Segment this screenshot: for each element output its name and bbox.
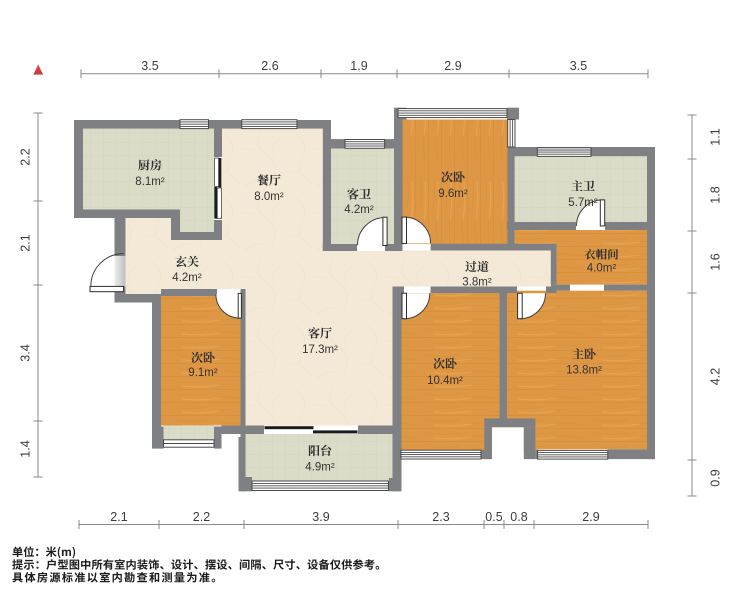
svg-text:2.2: 2.2 — [19, 148, 33, 165]
svg-text:2.9: 2.9 — [582, 510, 599, 524]
svg-text:4.0m²: 4.0m² — [587, 263, 617, 275]
svg-text:1.9: 1.9 — [350, 59, 367, 73]
svg-text:3.4: 3.4 — [19, 344, 33, 361]
svg-text:2.9: 2.9 — [444, 59, 461, 73]
svg-text:9.6m²: 9.6m² — [438, 188, 468, 200]
svg-text:4.2m²: 4.2m² — [344, 204, 374, 216]
svg-text:9.1m²: 9.1m² — [188, 367, 218, 379]
svg-text:2.2: 2.2 — [193, 510, 210, 524]
svg-text:10.4m²: 10.4m² — [427, 375, 463, 387]
svg-text:2.6: 2.6 — [261, 59, 278, 73]
svg-text:17.3m²: 17.3m² — [302, 344, 338, 356]
svg-text:8.1m²: 8.1m² — [135, 176, 165, 188]
svg-text:3.5: 3.5 — [570, 59, 587, 73]
svg-text:1.1: 1.1 — [709, 128, 723, 145]
svg-text:2.1: 2.1 — [110, 510, 127, 524]
svg-text:3.8m²: 3.8m² — [462, 277, 492, 289]
svg-text:0.8: 0.8 — [510, 510, 527, 524]
svg-text:5.7m²: 5.7m² — [568, 197, 598, 209]
svg-text:13.8m²: 13.8m² — [566, 365, 602, 377]
svg-text:4.2m²: 4.2m² — [172, 272, 202, 284]
svg-text:1.8: 1.8 — [709, 186, 723, 203]
svg-text:4.2: 4.2 — [709, 368, 723, 385]
svg-text:4.9m²: 4.9m² — [305, 462, 335, 474]
svg-text:0.5: 0.5 — [485, 510, 502, 524]
svg-text:0.9: 0.9 — [709, 469, 723, 486]
svg-text:2.3: 2.3 — [432, 510, 449, 524]
svg-text:1.6: 1.6 — [709, 253, 723, 270]
svg-text:2.1: 2.1 — [19, 234, 33, 251]
svg-text:3.5: 3.5 — [141, 59, 158, 73]
svg-text:3.9: 3.9 — [312, 510, 329, 524]
svg-text:1.4: 1.4 — [19, 440, 33, 457]
svg-text:8.0m²: 8.0m² — [254, 191, 284, 203]
